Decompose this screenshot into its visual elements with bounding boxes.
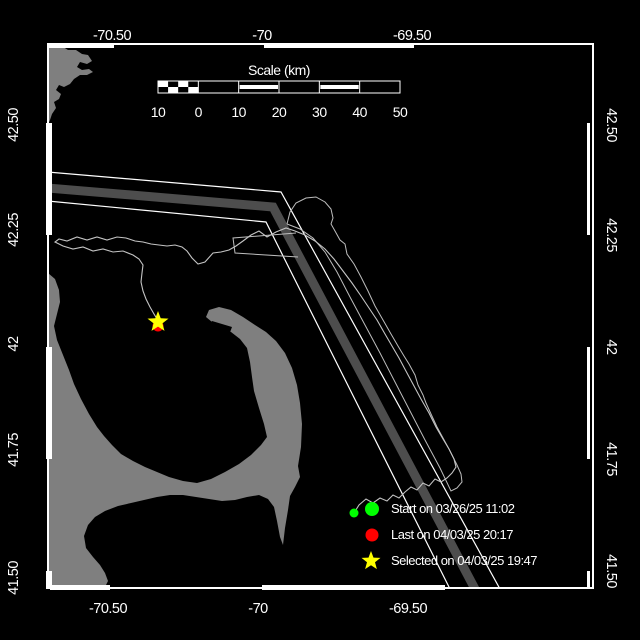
legend: Start on 03/26/25 11:02Last on 04/03/25 … <box>362 501 538 569</box>
frame-tick-top <box>264 43 414 48</box>
sanctuary-outline <box>287 197 462 491</box>
scale-tick-label: 20 <box>272 104 287 120</box>
start-position-marker[interactable] <box>350 509 359 518</box>
frame-tick-right <box>587 123 590 235</box>
land-cape-ann <box>48 45 93 125</box>
scale-checker-cell <box>158 81 168 87</box>
scale-checker-cell <box>188 87 198 93</box>
lat-label-right: 41.50 <box>603 554 619 588</box>
lon-label-bottom: -70.50 <box>89 601 128 617</box>
lat-label-left: 42 <box>6 336 22 352</box>
scale-tick-label: 30 <box>312 104 327 120</box>
scale-stripe <box>240 85 278 89</box>
lat-label-left: 42.25 <box>6 213 22 247</box>
frame-tick-bottom <box>50 585 110 590</box>
scale-checker-cell <box>168 87 178 93</box>
lat-label-right: 42 <box>603 339 619 355</box>
lane-line-south <box>48 201 450 589</box>
scale-bar-title: Scale (km) <box>248 62 310 78</box>
legend-last-dot-icon <box>366 529 379 542</box>
lat-label-right: 42.25 <box>603 218 619 252</box>
landmass-layer <box>48 45 302 589</box>
legend-label: Start on 03/26/25 11:02 <box>391 501 515 516</box>
scale-tick-label: 40 <box>352 104 367 120</box>
scale-stripe <box>320 85 358 89</box>
scale-checker-cell <box>178 81 188 87</box>
lat-label-right: 42.50 <box>603 108 619 142</box>
scale-tick-label: 10 <box>151 104 166 120</box>
frame-tick-left <box>46 347 52 459</box>
lon-label-top: -70 <box>252 28 272 44</box>
drifter-track-map: -70.50-70-69.50-70.50-70-69.5042.5042.25… <box>0 0 640 640</box>
frame-tick-left <box>46 571 52 589</box>
lat-label-left: 41.50 <box>6 561 22 595</box>
scale-bar: Scale (km)1001020304050 <box>151 62 408 120</box>
scale-tick-label: 50 <box>393 104 408 120</box>
frame-tick-bottom <box>262 585 445 590</box>
lon-label-top: -69.50 <box>393 28 432 44</box>
map-window: { "map": { "description": "Drifter track… <box>0 0 640 640</box>
lat-label-left: 42.50 <box>6 108 22 142</box>
frame-tick-right <box>587 571 590 589</box>
lon-label-bottom: -69.50 <box>389 601 428 617</box>
legend-selected-star-icon <box>362 551 381 569</box>
frame-tick-left <box>46 123 52 235</box>
land-cape-cod <box>48 273 302 589</box>
lat-label-right: 41.75 <box>603 442 619 476</box>
legend-start-dot-icon <box>365 502 379 516</box>
legend-label: Selected on 04/03/25 19:47 <box>391 553 537 568</box>
scale-tick-label: 0 <box>195 104 203 120</box>
lon-label-top: -70.50 <box>93 28 132 44</box>
lon-label-bottom: -70 <box>248 601 268 617</box>
lat-label-left: 41.75 <box>6 433 22 467</box>
frame-tick-right <box>587 347 590 459</box>
scale-tick-label: 10 <box>231 104 246 120</box>
legend-label: Last on 04/03/25 20:17 <box>391 527 513 542</box>
